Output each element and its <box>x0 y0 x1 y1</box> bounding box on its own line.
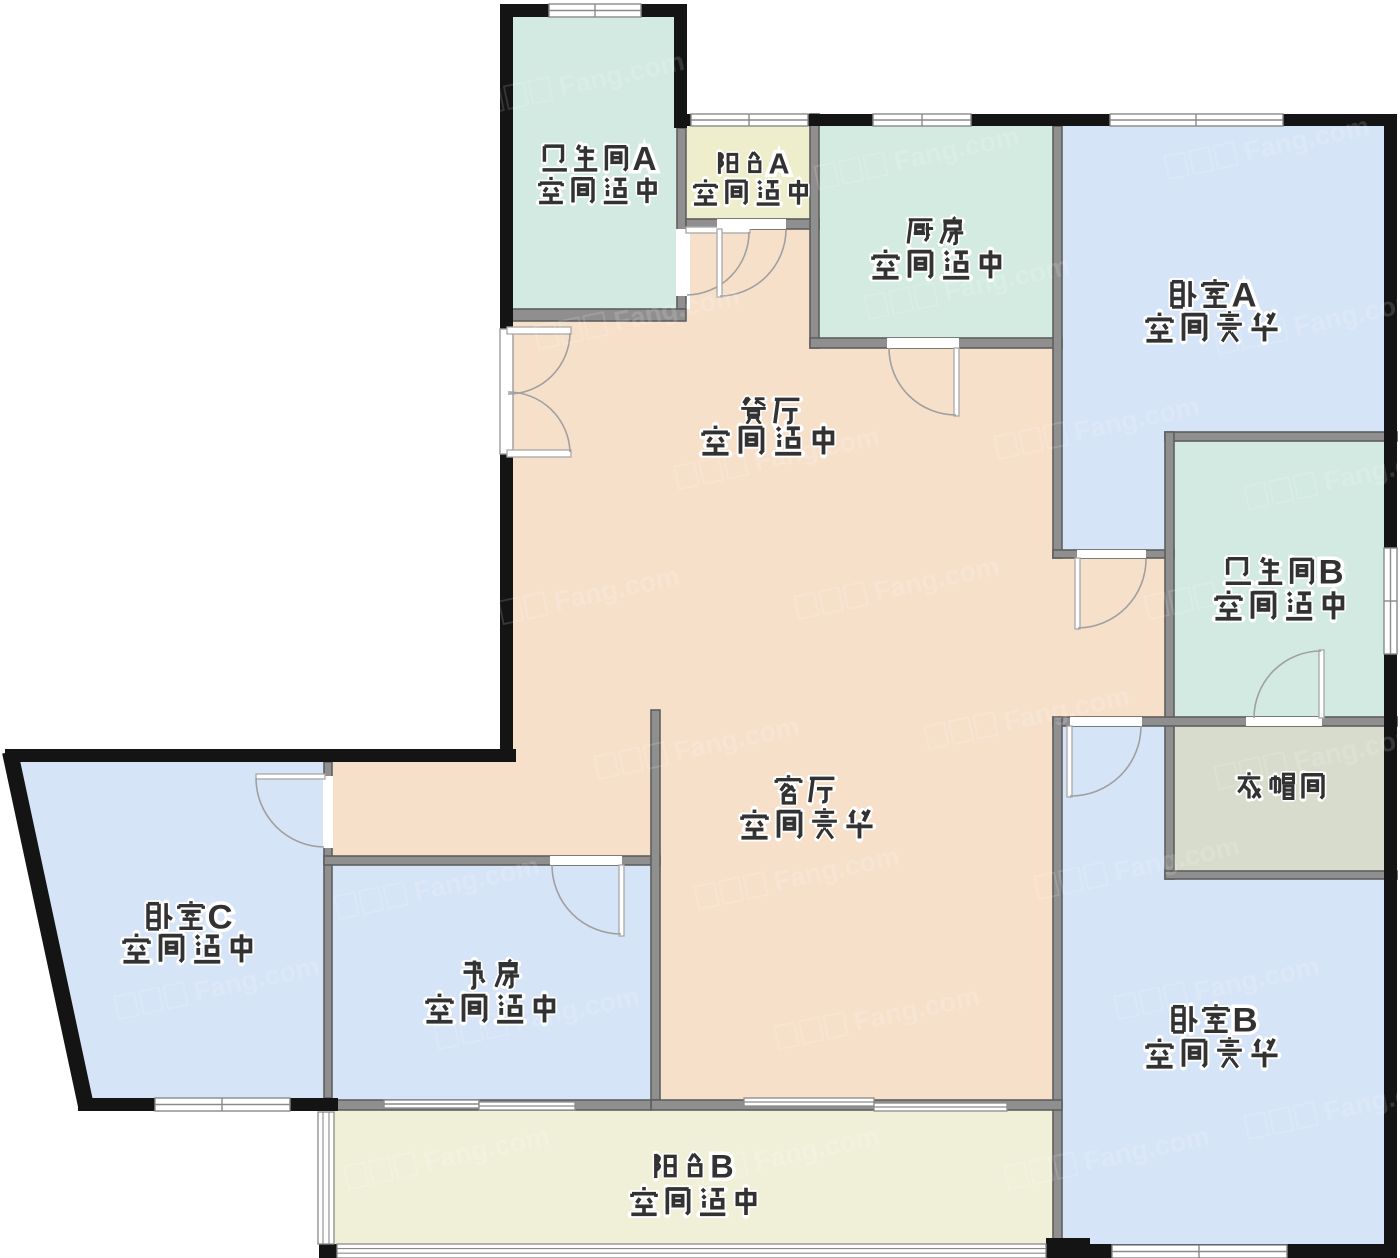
svg-text:B: B <box>1318 553 1343 591</box>
svg-text:B: B <box>710 1149 733 1185</box>
svg-text:A: A <box>768 148 789 180</box>
svg-text:A: A <box>1231 276 1256 314</box>
svg-text:A: A <box>632 141 656 178</box>
svg-text:B: B <box>1232 1002 1257 1040</box>
svg-text:C: C <box>207 898 232 936</box>
